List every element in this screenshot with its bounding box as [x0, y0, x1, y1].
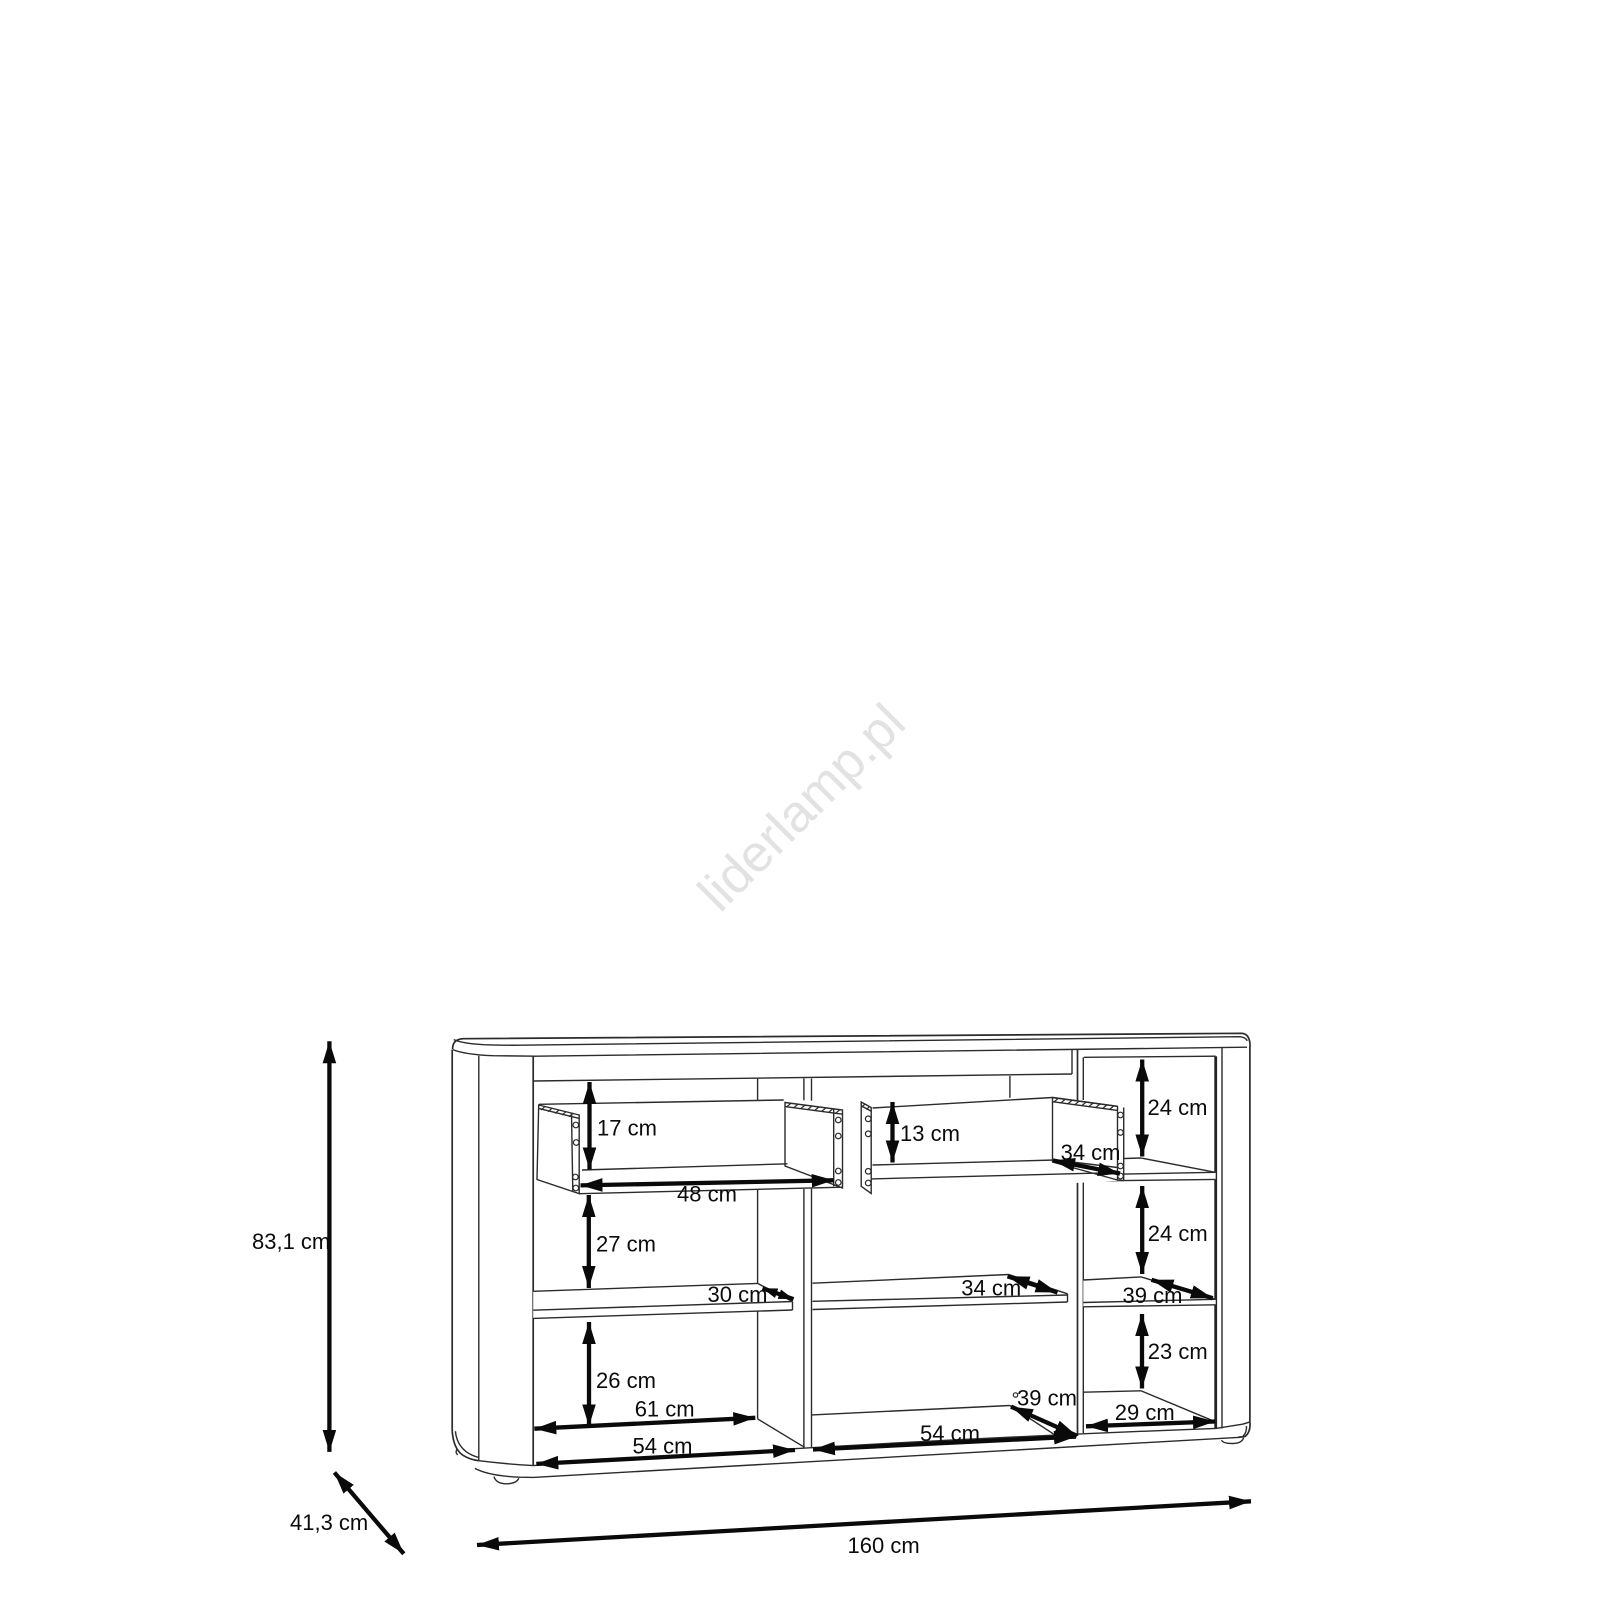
- svg-text:39 cm: 39 cm: [1017, 1386, 1077, 1411]
- svg-text:48 cm: 48 cm: [677, 1182, 737, 1207]
- svg-text:34 cm: 34 cm: [1061, 1140, 1121, 1165]
- svg-text:61 cm: 61 cm: [635, 1397, 695, 1422]
- svg-text:13 cm: 13 cm: [900, 1121, 960, 1146]
- svg-text:24 cm: 24 cm: [1148, 1221, 1208, 1246]
- svg-text:17 cm: 17 cm: [597, 1116, 657, 1141]
- svg-text:26 cm: 26 cm: [596, 1368, 656, 1393]
- svg-text:160 cm: 160 cm: [848, 1533, 920, 1558]
- svg-text:24 cm: 24 cm: [1148, 1095, 1208, 1120]
- svg-text:23 cm: 23 cm: [1148, 1339, 1208, 1364]
- svg-text:39 cm: 39 cm: [1123, 1283, 1183, 1308]
- svg-text:54 cm: 54 cm: [920, 1421, 980, 1446]
- svg-text:27 cm: 27 cm: [596, 1232, 656, 1257]
- svg-text:29 cm: 29 cm: [1115, 1400, 1175, 1425]
- svg-text:34 cm: 34 cm: [961, 1276, 1021, 1301]
- svg-text:liderlamp.pl: liderlamp.pl: [687, 693, 916, 922]
- svg-text:83,1 cm: 83,1 cm: [252, 1229, 330, 1254]
- svg-text:41,3 cm: 41,3 cm: [290, 1510, 368, 1535]
- svg-text:30 cm: 30 cm: [708, 1282, 768, 1307]
- svg-text:54 cm: 54 cm: [633, 1434, 693, 1459]
